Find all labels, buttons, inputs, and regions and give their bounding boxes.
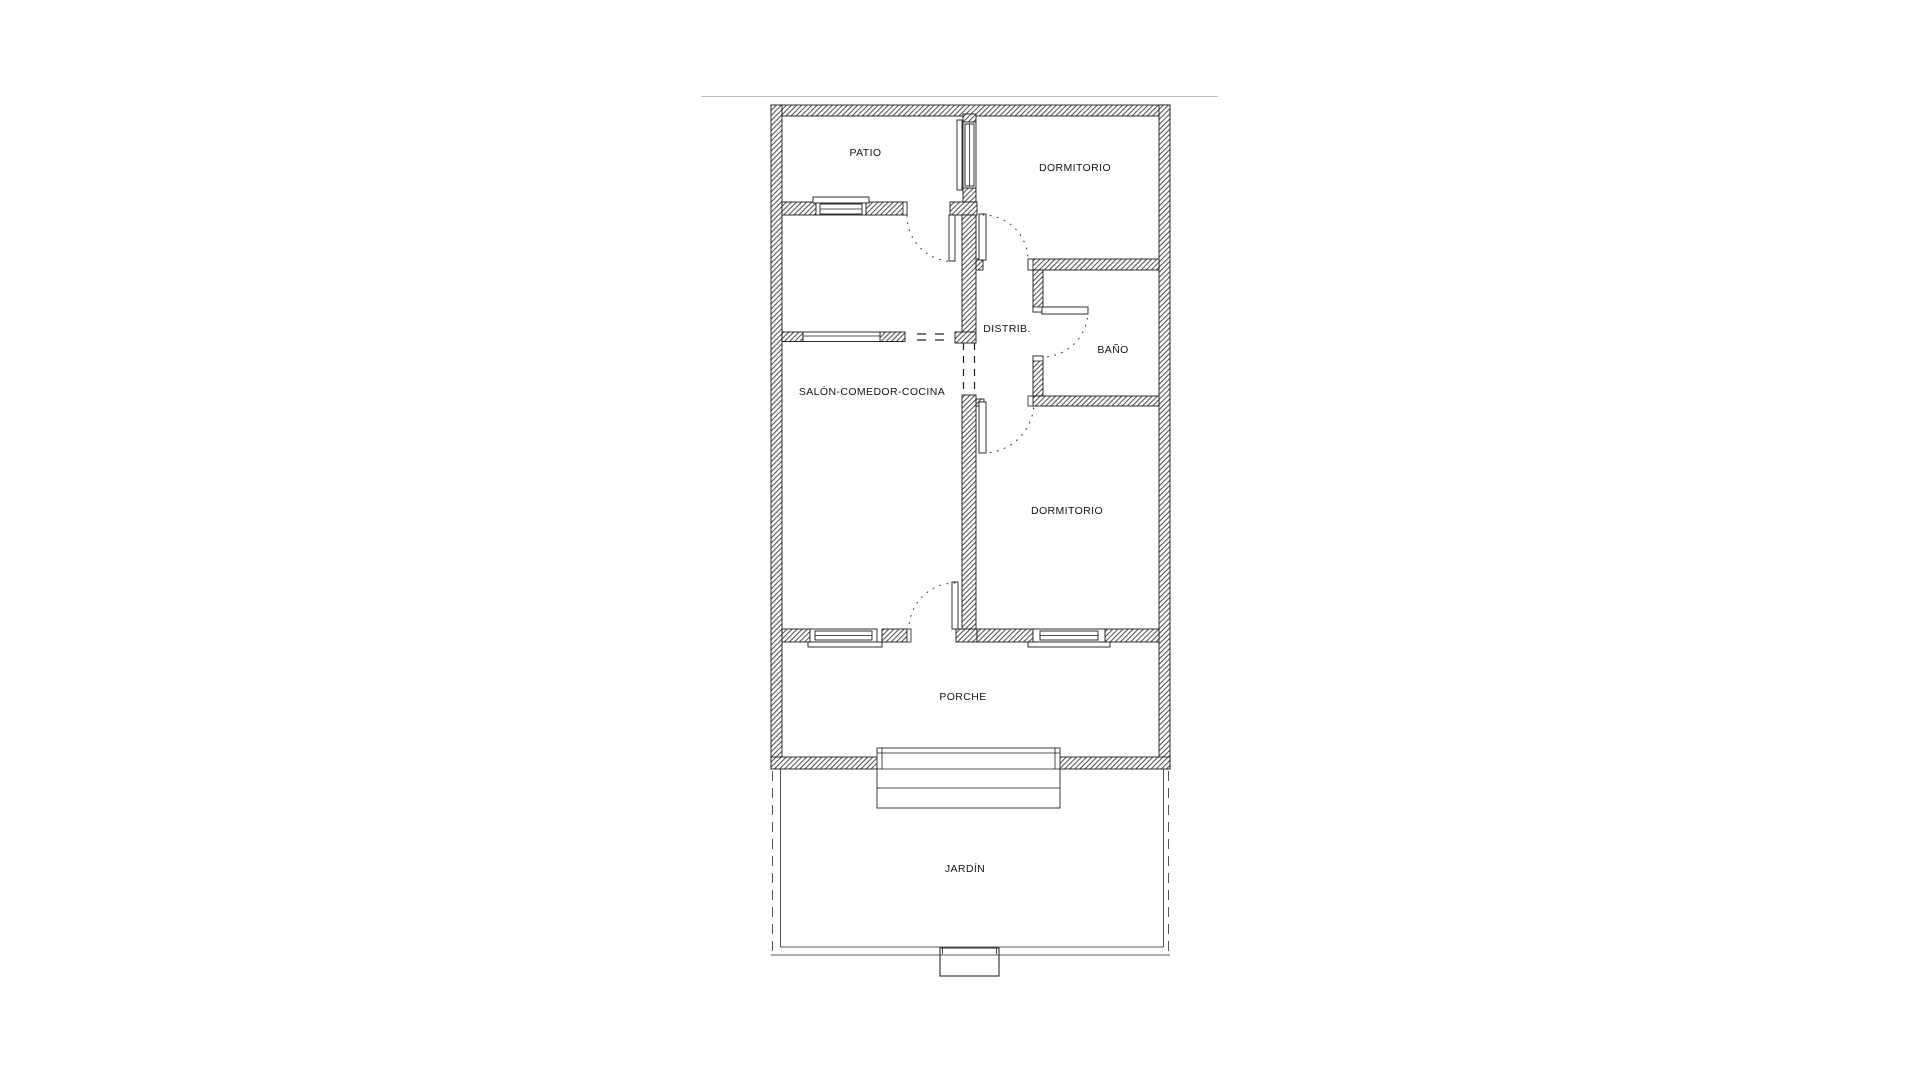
patio-partition-stub-top [963,114,976,122]
bano-wall-cap-lower [1033,356,1043,361]
porch-south-wall-left [771,757,877,769]
window-sill [808,642,882,647]
room-label-salon-comedor-cocina: SALÓN-COMEDOR-COCINA [799,385,945,398]
wall-south-seg-2 [882,629,907,642]
central-wall-lower [962,395,976,629]
bano-south-wall-cap [1028,396,1033,406]
door-swing-arc [983,215,1028,260]
floor-plan-canvas: PATIO DORMITORIO DISTRIB. BAÑO SALÓN-COM… [0,0,1920,1080]
room-label-porche: PORCHE [939,691,986,703]
divider-wall-seg-left [782,332,803,342]
room-label-jardin: JARDÍN [945,862,985,875]
door-salon-porche [909,582,958,629]
door-jamb-cap [907,629,911,642]
room-label-dormitorio-2: DORMITORIO [1031,505,1103,517]
door-leaf [1042,307,1088,314]
wall-west [771,105,782,769]
windows [803,120,1110,647]
door-leaf [952,582,958,629]
porch-south-wall-right [1060,757,1170,769]
room-label-dormitorio-1: DORMITORIO [1039,162,1111,174]
floor-plan-page: PATIO DORMITORIO DISTRIB. BAÑO SALÓN-COM… [0,0,1920,1080]
bano-west-wall-upper [1033,270,1043,312]
patio-wall-jog-block [950,202,977,215]
window-sill [1028,642,1110,647]
window-divider-strip [803,332,880,342]
bano-west-wall-lower [1033,356,1043,396]
patio-partition-stub-bottom [963,188,976,202]
wall-south-seg-5 [1105,629,1159,642]
door-swing-arc [907,216,953,262]
interior-walls [782,114,1159,629]
window-dormitorio2 [1028,629,1110,647]
door-swing-arc [1042,311,1088,357]
porch-steps [877,748,1060,808]
patio-wall-seg-right [866,202,907,215]
room-label-patio: PATIO [850,147,882,159]
wall-south-seg-3 [956,629,977,642]
door-leaf [949,215,955,261]
doors [907,214,1088,629]
door-swing-arc [983,402,1034,453]
door-dormitorio-2 [979,402,1034,453]
door-patio [907,215,955,262]
wall-east [1159,105,1170,769]
central-wall-upper [962,215,976,332]
gate-outline [940,948,999,976]
patio-wall-seg-left [782,202,816,215]
window-sill [957,120,962,190]
window-salon [808,629,882,647]
patio-door-jamb-cap [903,202,907,215]
garden-gate [940,948,999,976]
room-label-distribuidor: DISTRIB. [983,323,1031,335]
divider-wall-seg-right [880,332,905,342]
central-wall-corner-block [955,332,976,343]
dormitorio1-south-wall [1028,259,1159,270]
wall-south-seg-4 [977,629,1033,642]
steps-outline [877,748,1060,808]
door-swing-arc [909,583,955,629]
door-dormitorio-1 [979,214,1028,260]
wall-south-seg-1 [782,629,810,642]
room-label-bano: BAÑO [1097,343,1128,356]
door-leaf [979,402,986,453]
bano-south-wall [1033,396,1159,406]
bano-wall-cap-upper [1033,307,1043,312]
window-sill [813,197,869,203]
dormitorio1-wall-cap [1028,259,1033,270]
door-bano [1042,307,1088,357]
passage-divider-dashes [917,334,944,340]
dormitorio1-door-stub [976,259,983,270]
passage-salon-distribuidor [964,343,975,395]
window-patio [813,197,869,215]
door-leaf [979,214,986,260]
window-frame [803,332,880,342]
window-patio-dormitorio [957,120,976,190]
